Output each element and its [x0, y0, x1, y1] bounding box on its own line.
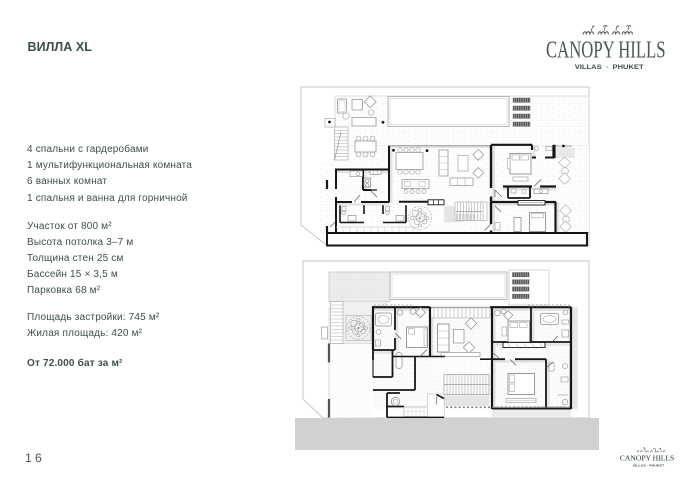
svg-text:CANOPY HILLS: CANOPY HILLS — [546, 37, 666, 64]
svg-text:VILLAS · PHUKET: VILLAS · PHUKET — [633, 464, 665, 468]
svg-text:VILLAS · PHUKET: VILLAS · PHUKET — [575, 64, 644, 71]
svg-text:CANOPY HILLS: CANOPY HILLS — [620, 455, 675, 463]
